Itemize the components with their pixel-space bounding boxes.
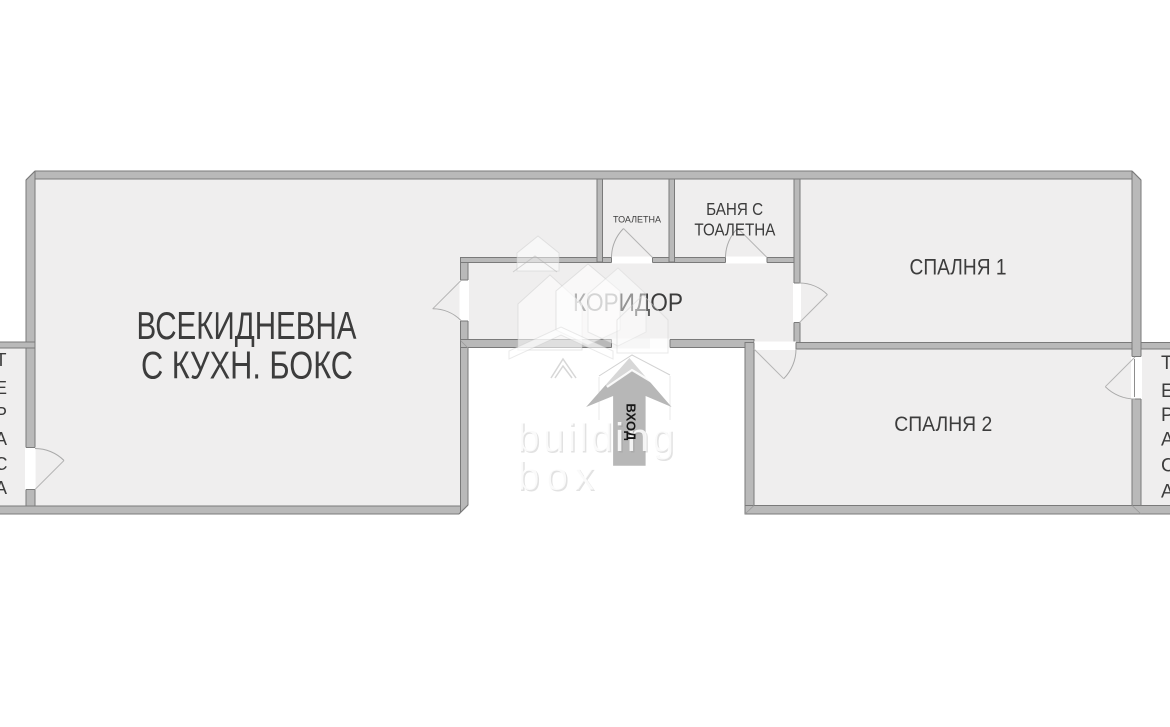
svg-text:СПАЛНЯ 2: СПАЛНЯ 2: [894, 413, 992, 436]
svg-text:ТОАЛЕТНА: ТОАЛЕТНА: [694, 220, 775, 240]
svg-text:С КУХН. БОКС: С КУХН. БОКС: [141, 345, 353, 388]
svg-text:Р: Р: [0, 404, 7, 424]
svg-text:Т: Т: [0, 350, 7, 370]
svg-text:С: С: [0, 454, 8, 474]
svg-text:А: А: [0, 478, 7, 498]
svg-text:А: А: [0, 429, 7, 449]
svg-text:ВСЕКИДНЕВНА: ВСЕКИДНЕВНА: [137, 305, 357, 348]
svg-text:Е: Е: [0, 378, 7, 398]
svg-text:box: box: [517, 455, 594, 499]
svg-text:Р: Р: [1161, 405, 1170, 426]
svg-text:СПАЛНЯ 1: СПАЛНЯ 1: [910, 255, 1007, 280]
svg-text:ТОАЛЕТНА: ТОАЛЕТНА: [613, 214, 662, 225]
svg-text:С: С: [1161, 456, 1170, 477]
svg-text:А: А: [1161, 482, 1170, 503]
svg-text:ВХОД: ВХОД: [624, 403, 639, 441]
svg-text:БАНЯ С: БАНЯ С: [706, 199, 763, 219]
svg-text:А: А: [1161, 429, 1170, 450]
svg-text:Е: Е: [1161, 381, 1170, 402]
svg-text:Т: Т: [1161, 353, 1170, 374]
